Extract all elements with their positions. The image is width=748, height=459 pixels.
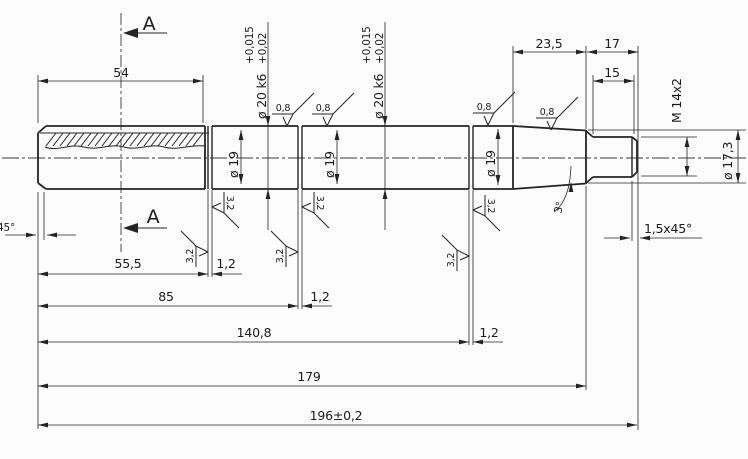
dim-overall-length: 196±0,2 (310, 408, 363, 423)
dim-dia20-k6-a: ø 20 k6 (254, 73, 269, 119)
dim-groove3-width: 1,2 (479, 325, 498, 340)
dim-groove2-width: 1,2 (310, 289, 329, 304)
section-arrowheads (123, 28, 138, 233)
roughness-value: 0,8 (540, 107, 555, 118)
section-arrow-lines (127, 33, 167, 228)
roughness-mark-icon: 0,8 (536, 97, 578, 130)
knurl-hatch (46, 133, 203, 146)
dim-dia20-k6-b: ø 20 k6 (371, 73, 386, 119)
dim-dia19-b: ø 19 (322, 151, 337, 178)
extension-lines (38, 46, 746, 430)
drawing-sheet: A A 54 23,5 17 15 55,5 1,2 85 1,2 140,8 … (0, 0, 748, 459)
dim-groove1-width: 1,2 (216, 256, 235, 271)
dim-chamfer-left: 45° (0, 222, 15, 234)
dim-thread-length: 15 (604, 65, 620, 80)
roughness-mark-icon: 3,2 (271, 231, 298, 267)
roughness-mark-icon: 0,8 (473, 92, 515, 125)
roughness-mark-icon: 3,2 (181, 231, 208, 267)
technical-drawing-canvas: A A 54 23,5 17 15 55,5 1,2 85 1,2 140,8 … (0, 0, 748, 459)
dim-dia20-tol-lower-b: +0,02 (374, 33, 386, 64)
section-view-markers: A A (123, 13, 167, 233)
roughness-mark-icon: 3,2 (473, 195, 500, 231)
roughness-value: 3,2 (446, 253, 457, 268)
roughness-mark-icon: 3,2 (442, 235, 469, 271)
roughness-value: 3,2 (275, 249, 286, 264)
section-label-bottom: A (147, 206, 160, 228)
dim-to-groove2: 85 (158, 289, 174, 304)
dim-taper-length: 23,5 (535, 36, 562, 51)
roughness-mark-icon: 0,8 (312, 93, 354, 126)
dim-dia20-tol-lower-a: +0,02 (257, 33, 269, 64)
roughness-value: 3,2 (224, 196, 235, 211)
roughness-mark-icon: 3,2 (212, 192, 239, 228)
dim-dia19-a: ø 19 (226, 151, 241, 178)
dim-chamfer-right: 1,5x45° (644, 221, 692, 236)
dim-taper-angle: 3° (552, 201, 567, 215)
dim-to-groove1: 55,5 (114, 256, 141, 271)
roughness-value: 3,2 (185, 249, 196, 264)
roughness-value: 0,8 (276, 103, 291, 114)
roughness-marks-fine: 0,8 0,8 0,8 0,8 (272, 92, 578, 130)
dim-thread-spec: M 14x2 (669, 78, 684, 123)
roughness-mark-icon: 0,8 (272, 93, 314, 126)
roughness-value: 0,8 (316, 103, 331, 114)
knurl-wavy-line (45, 146, 205, 149)
dim-thread-total-length: 17 (604, 36, 620, 51)
roughness-value: 3,2 (485, 199, 496, 214)
roughness-value: 3,2 (314, 196, 325, 211)
dim-knurl-length: 54 (113, 65, 129, 80)
roughness-mark-icon: 3,2 (302, 192, 329, 228)
dim-dia17-3: ø 17,3 (720, 142, 735, 180)
dimension-texts: 54 23,5 17 15 55,5 1,2 85 1,2 140,8 1,2 … (0, 36, 692, 423)
roughness-value: 0,8 (477, 102, 492, 113)
dim-dia20-tol-upper-a: +0,015 (244, 26, 256, 64)
dim-to-groove3: 140,8 (237, 325, 272, 340)
dim-dia19-c: ø 19 (483, 150, 498, 177)
groove-lines (208, 126, 632, 189)
section-label-top: A (143, 13, 156, 35)
dim-dia20-tol-upper-b: +0,015 (361, 26, 373, 64)
dim-to-shoulder: 179 (297, 369, 321, 384)
